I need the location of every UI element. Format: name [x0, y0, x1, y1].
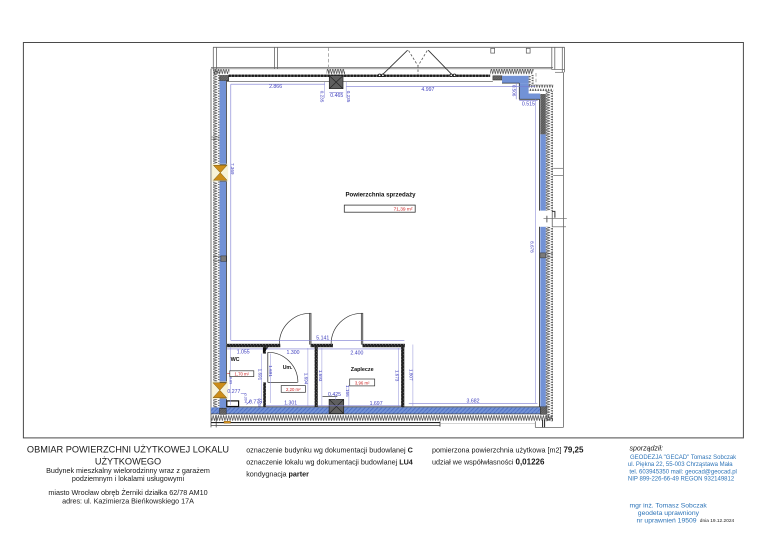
svg-text:GEODEZJA "GECAD" Tomasz Sobcza: GEODEZJA "GECAD" Tomasz Sobczak: [630, 455, 737, 461]
svg-text:1.673: 1.673: [395, 370, 400, 382]
svg-text:2.866: 2.866: [269, 84, 282, 90]
svg-text:adres: ul. Kazimierza Bieńkows: adres: ul. Kazimierza Bieńkowskiego 17A: [62, 496, 194, 505]
svg-text:0.394: 0.394: [243, 393, 247, 403]
svg-text:1.691: 1.691: [268, 365, 273, 377]
svg-text:0.235: 0.235: [319, 91, 324, 103]
svg-text:0.277: 0.277: [227, 389, 240, 395]
svg-text:1.694: 1.694: [304, 373, 309, 385]
svg-text:2.400: 2.400: [350, 350, 363, 356]
svg-text:Um.: Um.: [283, 365, 293, 371]
svg-text:nr uprawnień 19509: nr uprawnień 19509: [637, 517, 697, 524]
svg-text:kondygnacja parter: kondygnacja parter: [246, 470, 309, 479]
svg-text:oznaczenie lokalu wg dokumenta: oznaczenie lokalu wg dokumentacji budowl…: [246, 458, 413, 467]
svg-text:pomierzona powierzchnia użytko: pomierzona powierzchnia użytkowa [m2] 79…: [432, 445, 584, 454]
svg-text:0.235: 0.235: [346, 91, 351, 103]
svg-text:1.055: 1.055: [237, 350, 250, 356]
svg-text:dnia 19.12.2024: dnia 19.12.2024: [700, 518, 735, 524]
svg-text:udział we współwłasności 0,012: udział we współwłasności 0,01226: [432, 458, 545, 467]
svg-text:Powierzchnia sprzedaży: Powierzchnia sprzedaży: [345, 191, 416, 198]
svg-text:0.515: 0.515: [522, 102, 535, 108]
svg-text:0.125: 0.125: [257, 398, 261, 407]
svg-text:0.465: 0.465: [330, 93, 343, 99]
svg-text:OBMIAR POWIERZCHNI UŻYTKOWEJ L: OBMIAR POWIERZCHNI UŻYTKOWEJ LOKALU: [27, 445, 229, 455]
svg-text:sporządził:: sporządził:: [630, 446, 664, 453]
svg-text:1.691: 1.691: [258, 369, 263, 381]
svg-text:0.89: 0.89: [229, 377, 233, 384]
svg-text:4.997: 4.997: [421, 87, 434, 93]
svg-text:1.166: 1.166: [345, 385, 350, 397]
svg-text:7.369: 7.369: [230, 163, 235, 175]
svg-text:tel. 603945350 mail: geocad@ge: tel. 603945350 mail: geocad@geocad.pl: [629, 470, 737, 476]
svg-text:3.682: 3.682: [467, 398, 480, 404]
svg-text:mgr inż. Tomasz Sobczak: mgr inż. Tomasz Sobczak: [630, 503, 708, 510]
svg-text:0.425: 0.425: [328, 392, 341, 398]
svg-text:oznaczenie budynku wg dokument: oznaczenie budynku wg dokumentacji budow…: [246, 445, 413, 454]
svg-text:2,20 m²: 2,20 m²: [286, 387, 301, 392]
svg-text:1.697: 1.697: [370, 401, 383, 407]
svg-text:ul. Piękna 22, 55-003 Chrząsta: ul. Piękna 22, 55-003 Chrząstawa Mała: [628, 462, 733, 468]
svg-text:1,70 m²: 1,70 m²: [235, 371, 250, 376]
svg-text:1.301: 1.301: [284, 400, 297, 406]
svg-text:podziemnym i lokalami usługowy: podziemnym i lokalami usługowymi: [72, 474, 185, 483]
svg-text:8.678: 8.678: [530, 241, 535, 253]
svg-text:geodeta uprawniony: geodeta uprawniony: [638, 510, 700, 517]
svg-text:UŻYTKOWEGO: UŻYTKOWEGO: [95, 456, 161, 466]
svg-text:1.300: 1.300: [287, 350, 300, 356]
svg-text:5.141: 5.141: [316, 336, 329, 342]
svg-text:1.807: 1.807: [409, 369, 414, 381]
svg-text:0.506: 0.506: [511, 85, 516, 97]
svg-text:3,96 m²: 3,96 m²: [355, 381, 370, 386]
svg-text:Zaplecze: Zaplecze: [351, 367, 374, 373]
svg-text:NIP 899-226-66-49 REGON 932149: NIP 899-226-66-49 REGON 932149812: [628, 477, 735, 483]
svg-text:1.693: 1.693: [318, 370, 323, 382]
svg-text:WC: WC: [231, 357, 240, 363]
svg-text:71,39 m²: 71,39 m²: [394, 207, 413, 213]
